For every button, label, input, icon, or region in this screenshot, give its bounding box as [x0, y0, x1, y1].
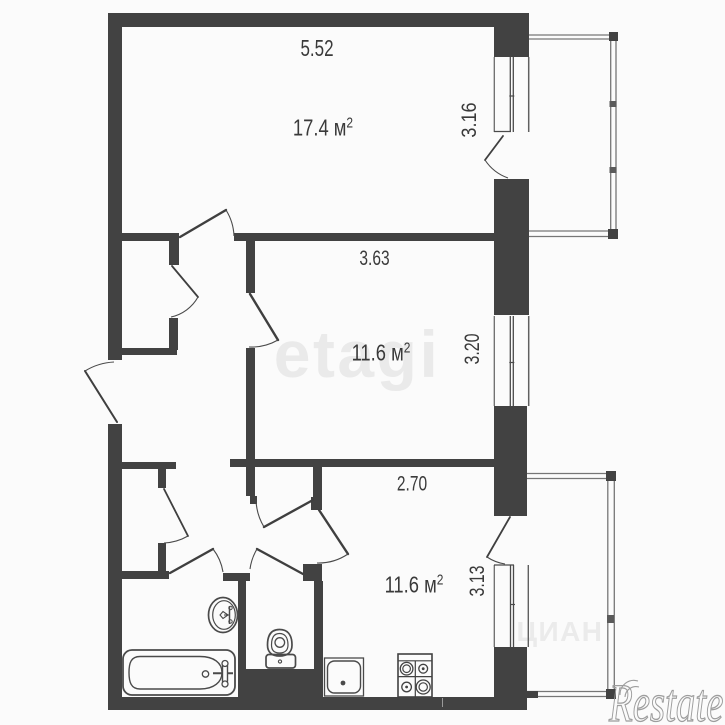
svg-text:Restate: Restate: [608, 674, 723, 725]
svg-text:3.20: 3.20: [460, 333, 484, 364]
svg-text:2.70: 2.70: [397, 471, 427, 495]
svg-text:11.6 м2: 11.6 м2: [385, 571, 444, 598]
svg-text:17.4 м2: 17.4 м2: [293, 114, 353, 141]
svg-text:3.13: 3.13: [465, 565, 489, 596]
svg-text:3.63: 3.63: [359, 246, 389, 270]
svg-text:5.52: 5.52: [300, 37, 333, 62]
svg-text:3.16: 3.16: [458, 102, 482, 137]
svg-text:11.6 м2: 11.6 м2: [352, 339, 411, 366]
svg-text:ЦИАН: ЦИАН: [516, 616, 603, 647]
